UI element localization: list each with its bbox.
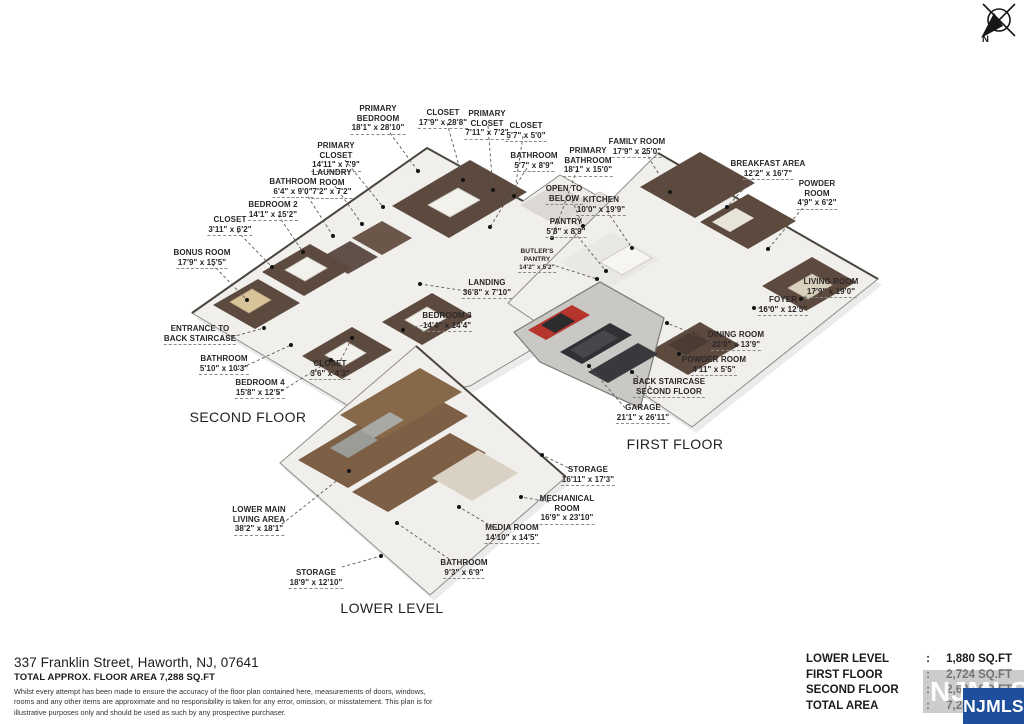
disclaimer-text: Whilst every attempt has been made to en… xyxy=(14,687,444,718)
first-floor-title: FIRST FLOOR xyxy=(627,436,724,452)
total-approx-area: TOTAL APPROX. FLOOR AREA 7,288 SQ.FT xyxy=(14,672,444,683)
room-label-media-room: MEDIA ROOM14'10" x 14'5" xyxy=(485,523,540,544)
room-label-kitchen: KITCHEN10'0" x 19'9" xyxy=(576,195,626,216)
room-label-primary-bathroom: PRIMARY BATHROOM18'1" x 15'0" xyxy=(563,146,613,177)
room-label-closet-c: CLOSET3'11" x 6'2" xyxy=(207,215,252,236)
area-row-lower-level: LOWER LEVEL:1,880 SQ.FT xyxy=(806,653,1012,669)
room-label-bathroom-lower: BATHROOM9'3" x 6'9" xyxy=(440,558,487,579)
room-label-landing: LANDING36'8" x 7'10" xyxy=(462,278,512,299)
room-label-breakfast-area: BREAKFAST AREA12'2" x 16'7" xyxy=(731,159,806,180)
floor-plan-page: PRIMARY BEDROOM18'1" x 28'10" CLOSET17'9… xyxy=(0,0,1024,724)
compass-icon xyxy=(981,4,1015,38)
room-label-powder-room-b: POWDER ROOM4'11" x 5'5" xyxy=(682,355,746,376)
room-label-garage: GARAGE21'1" x 26'11" xyxy=(616,403,670,424)
room-label-storage-a: STORAGE16'11" x 17'3" xyxy=(561,465,615,486)
room-label-bonus-room: BONUS ROOM17'9" x 15'5" xyxy=(174,248,231,269)
room-label-living-room: LIVING ROOM17'9" x 19'0" xyxy=(804,277,859,298)
room-label-primary-closet-a: PRIMARY CLOSET7'11" x 7'2" xyxy=(464,109,509,140)
room-label-closet-a: CLOSET17'9" x 28'8" xyxy=(418,108,468,129)
room-label-powder-room-a: POWDER ROOM4'9" x 6'2" xyxy=(796,179,837,210)
room-label-family-room: FAMILY ROOM17'9" x 25'0" xyxy=(609,137,666,158)
room-label-closet-b: CLOSET5'7" x 5'0" xyxy=(505,121,546,142)
compass-north-label: N xyxy=(982,34,989,45)
njmls-watermark-badge: NJMLS xyxy=(963,688,1024,724)
room-label-butlers-pantry: BUTLER'S PANTRY14'2" x 5'2" xyxy=(518,248,556,273)
room-label-bathroom-c: BATHROOM5'10" x 10'3" xyxy=(199,354,249,375)
property-address: 337 Franklin Street, Haworth, NJ, 07641 xyxy=(14,655,444,670)
second-floor-title: SECOND FLOOR xyxy=(190,409,307,425)
room-label-bedroom-2: BEDROOM 214'1" x 15'2" xyxy=(248,200,298,221)
room-label-foyer: FOYER16'0" x 12'5" xyxy=(758,295,808,316)
room-label-closet-d: CLOSET3'6" x 4'3" xyxy=(309,359,350,380)
room-label-bedroom-4: BEDROOM 415'8" x 12'5" xyxy=(235,378,285,399)
room-label-mechanical-room: MECHANICAL ROOM16'9" x 23'10" xyxy=(540,494,595,525)
room-label-entrance-back-staircase: ENTRANCE TO BACK STAIRCASE xyxy=(164,324,236,345)
room-label-dining-room: DINING ROOM20'0" x 13'9" xyxy=(708,330,764,351)
room-label-bedroom-3: BEDROOM 314'4" x 14'4" xyxy=(422,311,472,332)
room-label-back-staircase: BACK STAIRCASE SECOND FLOOR xyxy=(633,377,705,398)
room-label-primary-bedroom: PRIMARY BEDROOM18'1" x 28'10" xyxy=(351,104,406,135)
room-label-storage-b: STORAGE18'9" x 12'10" xyxy=(289,568,344,589)
room-label-pantry: PANTRY5'8" x 8'9" xyxy=(545,217,586,238)
lower-level-title: LOWER LEVEL xyxy=(340,600,443,616)
room-label-bathroom-b: BATHROOM5'7" x 8'9" xyxy=(510,151,557,172)
floor-plan-art xyxy=(0,0,1024,724)
room-label-lower-main-living-area: LOWER MAIN LIVING AREA38'2" x 18'1" xyxy=(232,505,285,536)
property-info: 337 Franklin Street, Haworth, NJ, 07641 … xyxy=(14,655,444,718)
room-label-laundry-room: LAUNDRY ROOM7'2" x 7'2" xyxy=(311,168,352,199)
room-label-bathroom-a: BATHROOM6'4" x 9'0" xyxy=(269,177,316,198)
